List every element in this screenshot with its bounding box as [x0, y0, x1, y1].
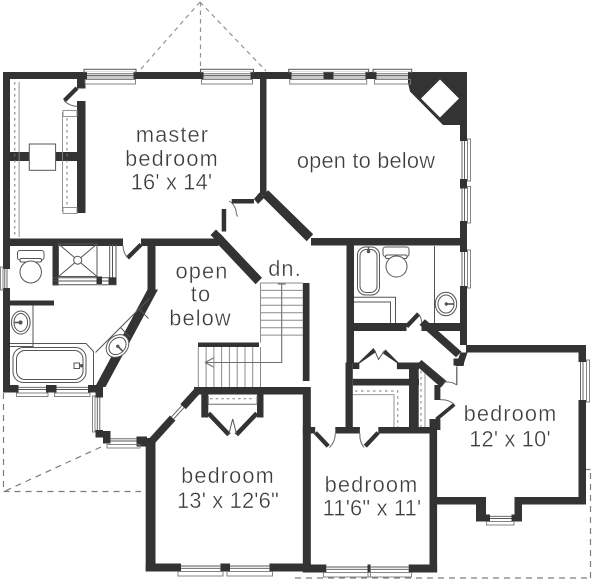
- svg-text:12' x 10': 12' x 10': [469, 427, 551, 452]
- svg-text:dn.: dn.: [268, 256, 302, 281]
- svg-text:bedroom: bedroom: [464, 401, 558, 426]
- svg-text:13' x 12'6": 13' x 12'6": [177, 488, 279, 513]
- svg-text:open to below: open to below: [297, 148, 435, 173]
- svg-text:below: below: [169, 306, 231, 331]
- svg-text:bedroom: bedroom: [181, 463, 275, 488]
- svg-text:open: open: [176, 259, 229, 284]
- svg-text:bedroom: bedroom: [325, 472, 419, 497]
- svg-text:to: to: [191, 282, 211, 307]
- svg-text:16' x 14': 16' x 14': [131, 170, 213, 195]
- svg-text:bedroom: bedroom: [125, 146, 219, 171]
- svg-text:11'6" x 11': 11'6" x 11': [323, 496, 422, 521]
- svg-text:master: master: [136, 122, 209, 147]
